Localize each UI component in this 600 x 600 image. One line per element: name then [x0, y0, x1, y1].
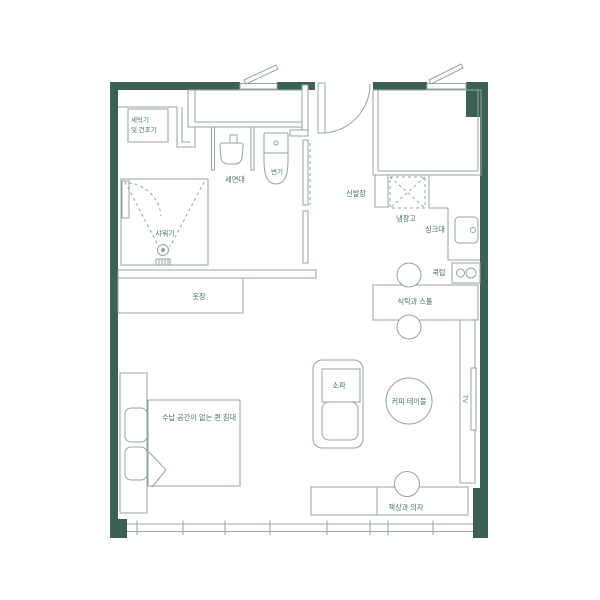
fridge-cross: [390, 177, 425, 208]
window-frame-2: [427, 84, 466, 90]
entry: 신발장: [318, 83, 481, 207]
wall-corner-bottom-right: [473, 488, 488, 538]
shoe-cabinet: [375, 175, 388, 207]
vanity-counter-outer: [188, 90, 308, 127]
wardrobe: [118, 278, 243, 313]
bed-label: 수납 공간이 없는 퀸 침대: [162, 413, 236, 422]
dining-label: 식탁과 스툴: [397, 297, 432, 306]
fridge-label: 냉장고: [396, 214, 416, 223]
wall-top-segment-2: [277, 82, 315, 90]
kitchen-sink: [455, 217, 478, 243]
entry-closet-outer: [373, 90, 481, 175]
vanity-support-left: [212, 127, 215, 170]
shower-label: 샤워기: [155, 229, 175, 238]
kitchen: 냉장고 싱크대 쿡탑 식탁과 스툴: [373, 175, 480, 339]
entrance-door-swing-arc: [325, 84, 370, 133]
washbasin: [220, 143, 243, 164]
desk-chair: [395, 472, 420, 497]
coffee-table-label: 커피 테이블: [391, 397, 426, 406]
toilet-tank: [264, 133, 288, 153]
living-area: 소파 커피 테이블 TV 책상과 의자: [311, 320, 476, 515]
wall-left: [110, 82, 118, 519]
sofa-label: 소파: [332, 381, 346, 390]
washer-dryer-box: [128, 109, 168, 142]
bottom-window-mullions: [137, 521, 433, 536]
laundry-area: 세탁기 및 건조기: [118, 107, 195, 147]
bedroom-area: 옷장 수납 공간이 없는 퀸 침대: [118, 270, 316, 513]
window-sash-2: [429, 64, 463, 84]
cooktop-label: 쿡탑: [432, 268, 446, 277]
bathroom-east-wall: [302, 85, 308, 132]
shower-head-inner: [161, 248, 165, 252]
shoe-cabinet-label: 신발장: [346, 189, 366, 198]
stool-bottom: [397, 315, 421, 339]
bottom-window: [127, 521, 473, 536]
sliding-door-panel-2: [303, 211, 308, 263]
pillow-bottom: [125, 447, 147, 480]
washer-dryer-label-line1: 세탁기: [131, 115, 149, 124]
bed-headboard: [120, 373, 147, 513]
top-windows: [240, 64, 466, 89]
bathroom-wall-stub: [290, 130, 308, 136]
washer-dryer-label-line2: 및 건조기: [131, 125, 157, 134]
floor-plan: 세탁기 및 건조기 세면대 변기 샤워기: [0, 0, 600, 600]
window-frame-1: [240, 84, 277, 90]
wardrobe-label: 옷장: [192, 292, 206, 301]
sofa-cushion-bottom: [322, 402, 358, 440]
shower-door: [122, 181, 129, 218]
toilet-label: 변기: [271, 167, 283, 176]
entrance-door-leaf: [318, 83, 325, 133]
vanity-support-right: [251, 127, 254, 170]
pillow-top: [125, 408, 147, 442]
wall-top-segment-1: [110, 82, 240, 90]
bulkhead-bar: [118, 270, 316, 278]
tv-screen: [471, 368, 476, 430]
wall-top-segment-3: [373, 82, 427, 90]
wall-corner-top-right: [466, 82, 488, 117]
desk-label: 책상과 의자: [388, 503, 423, 512]
entry-closet-inner: [378, 90, 478, 171]
wall-corner-bottom-left: [110, 519, 127, 538]
basin-faucet: [230, 135, 237, 143]
sliding-door-panel-1: [303, 140, 308, 205]
washbasin-label: 세면대: [225, 175, 245, 184]
tv-label: TV: [461, 395, 468, 404]
window-sash-1: [244, 65, 278, 84]
floor-plan-canvas: 세탁기 및 건조기 세면대 변기 샤워기: [0, 0, 600, 600]
sink-label: 싱크대: [425, 225, 445, 234]
stool-top: [397, 263, 421, 287]
